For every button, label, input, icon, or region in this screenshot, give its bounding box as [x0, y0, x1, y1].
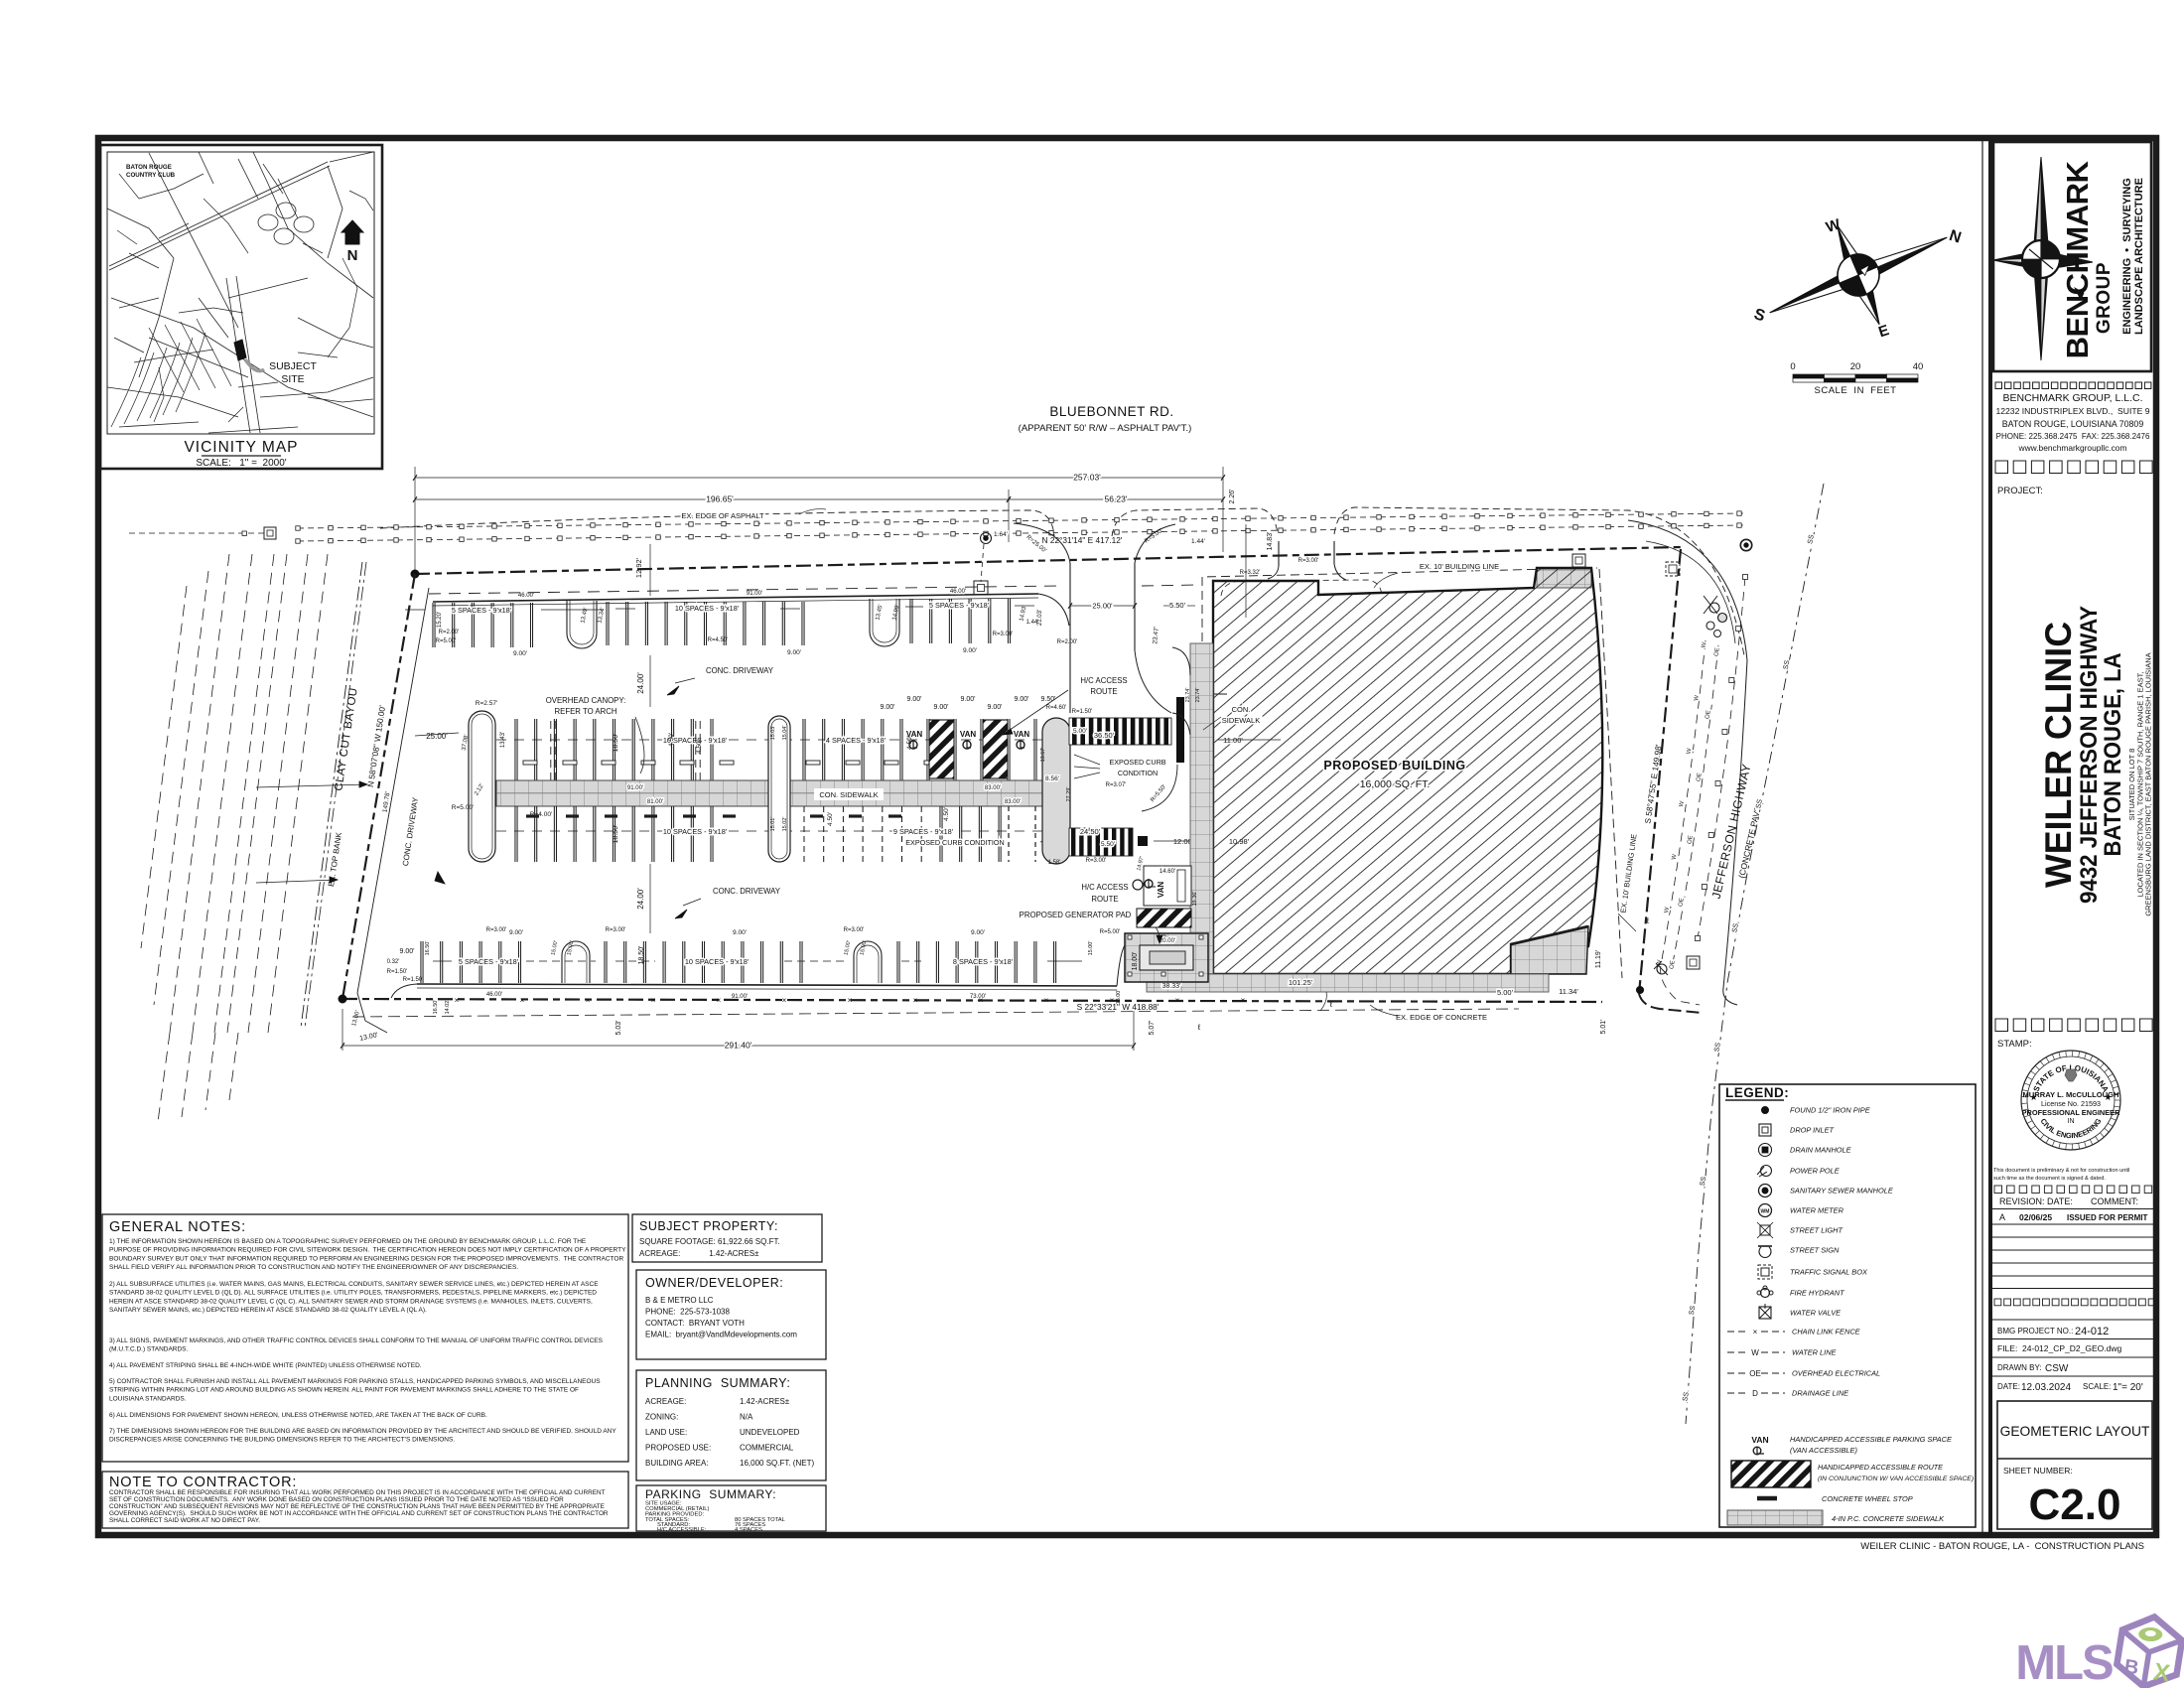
svg-text:R=5.00': R=5.00' [436, 638, 457, 644]
svg-text:25.00': 25.00' [426, 732, 448, 741]
svg-text:SANITARY SEWER MAINS, etc.) DE: SANITARY SEWER MAINS, etc.) DEPICTED HER… [109, 1307, 427, 1314]
svg-text:BUILDING AREA:: BUILDING AREA: [645, 1459, 709, 1468]
svg-text:14.02': 14.02' [445, 1000, 451, 1015]
svg-text:CONTRACTOR SHALL BE RESPONSIBL: CONTRACTOR SHALL BE RESPONSIBLE FOR INSU… [109, 1489, 606, 1496]
svg-text:WEILER CLINIC - BATON ROUGE, L: WEILER CLINIC - BATON ROUGE, LA - CONSTR… [1860, 1541, 2144, 1552]
svg-text:×: × [651, 996, 656, 1005]
svg-text:R=1.50': R=1.50' [403, 977, 424, 983]
svg-text:ENGINEERING • SURVEYING: ENGINEERING • SURVEYING [2121, 178, 2133, 335]
svg-text:License No. 21593: License No. 21593 [2041, 1099, 2101, 1108]
svg-text:VAN: VAN [960, 730, 977, 739]
svg-text:ℓ: ℓ [1329, 1000, 1333, 1009]
svg-text:STREET LIGHT: STREET LIGHT [1790, 1226, 1843, 1235]
svg-text:5) CONTRACTOR SHALL FURNISH AN: 5) CONTRACTOR SHALL FURNISH AND INSTALL … [109, 1378, 601, 1385]
svg-text:16,000 SQ.FT. (NET): 16,000 SQ.FT. (NET) [740, 1459, 814, 1468]
svg-text:5.01': 5.01' [1600, 1020, 1607, 1035]
svg-text:D: D [1752, 1389, 1758, 1398]
svg-text:9.00': 9.00' [1015, 696, 1029, 703]
svg-text:R=1.50': R=1.50' [1072, 709, 1093, 715]
svg-text:EX. 10' BUILDING LINE: EX. 10' BUILDING LINE [1420, 562, 1499, 571]
svg-text:4-IN P.C. CONCRETE SIDEWALK: 4-IN P.C. CONCRETE SIDEWALK [1832, 1514, 1945, 1523]
svg-text:SANITARY SEWER MANHOLE: SANITARY SEWER MANHOLE [1790, 1187, 1893, 1196]
svg-text:5 SPACES - 9'x18': 5 SPACES - 9'x18' [459, 957, 519, 966]
svg-text:18.50': 18.50' [613, 825, 619, 844]
svg-text:SCALE: 1" = 2000': SCALE: 1" = 2000' [196, 458, 286, 469]
svg-text:4.50': 4.50' [906, 736, 913, 750]
svg-text:HANDICAPPED ACCESSIBLE ROUTE: HANDICAPPED ACCESSIBLE ROUTE [1818, 1463, 1943, 1472]
svg-text:PROJECT:: PROJECT: [1997, 486, 2043, 496]
svg-text:46.00': 46.00' [486, 992, 502, 998]
svg-text:(M.U.T.C.D.) STANDARDS.: (M.U.T.C.D.) STANDARDS. [109, 1346, 189, 1353]
svg-text:15.04': 15.04' [782, 726, 788, 741]
svg-text:R=2.00': R=2.00' [1057, 639, 1078, 645]
svg-text:W: W [1751, 1348, 1759, 1357]
svg-text:such time as the document is s: such time as the document is signed & da… [1993, 1176, 2106, 1182]
svg-text:11.19': 11.19' [1595, 950, 1602, 968]
svg-text:24-012: 24-012 [2075, 1326, 2109, 1337]
svg-text:81.00': 81.00' [647, 799, 663, 805]
svg-text:5.50': 5.50' [1169, 601, 1186, 610]
svg-text:(IN CONJUNCTION W/ VAN ACCESSI: (IN CONJUNCTION W/ VAN ACCESSIBLE SPACE) [1818, 1476, 1974, 1482]
svg-text:4.50': 4.50' [696, 740, 703, 754]
svg-text:STANDARD 38-02 QUALITY LEVEL D: STANDARD 38-02 QUALITY LEVEL D (QL D). A… [109, 1290, 597, 1297]
svg-text:GOVERNING AGENCY(S). SHOULD S: GOVERNING AGENCY(S). SHOULD SUCH WORK BE… [109, 1510, 609, 1517]
svg-text:PHONE: 225-573-1038: PHONE: 225-573-1038 [645, 1308, 730, 1317]
svg-text:BATON ROUGE, LOUISIANA 70809: BATON ROUGE, LOUISIANA 70809 [2002, 419, 2144, 429]
svg-text:1.58': 1.58' [1048, 860, 1061, 866]
svg-text:REFER TO ARCH: REFER TO ARCH [555, 707, 617, 716]
svg-text:5.50': 5.50' [1101, 841, 1115, 848]
svg-text:7) THE DIMENSIONS SHOWN HEREON: 7) THE DIMENSIONS SHOWN HEREON FOR THE B… [109, 1428, 616, 1435]
svg-text:CONC. DRIVEWAY: CONC. DRIVEWAY [713, 887, 781, 896]
svg-text:EXPOSED CURB CONDITION: EXPOSED CURB CONDITION [905, 838, 1004, 847]
svg-text:36.50': 36.50' [1094, 731, 1115, 740]
svg-text:(APPARENT 50' R/W – ASPHALT PA: (APPARENT 50' R/W – ASPHALT PAV'T.) [1019, 423, 1192, 434]
svg-text:SHEET NUMBER:: SHEET NUMBER: [2003, 1466, 2073, 1476]
svg-text:19.36': 19.36' [1192, 892, 1198, 907]
svg-text:SHALL FIELD VERIFY ALL INFORMA: SHALL FIELD VERIFY ALL INFORMATION PRIOR… [109, 1264, 518, 1271]
svg-text:1"= 20': 1"= 20' [2113, 1382, 2143, 1393]
svg-text:PROFESSIONAL ENGINEER: PROFESSIONAL ENGINEER [2022, 1108, 2120, 1117]
svg-text:101.25': 101.25' [1289, 978, 1313, 987]
svg-text:56.23': 56.23' [1105, 494, 1128, 504]
svg-text:R=3.00': R=3.00' [1086, 858, 1107, 864]
svg-text:R=5.00': R=5.00' [452, 804, 474, 811]
svg-text:12232 INDUSTRIPLEX BLVD., SUI: 12232 INDUSTRIPLEX BLVD., SUITE 9 [1995, 406, 2149, 416]
svg-text:×: × [913, 996, 918, 1005]
svg-text:9.00': 9.00' [971, 929, 985, 936]
svg-text:VAN: VAN [1751, 1435, 1768, 1445]
svg-text:EX. EDGE OF CONCRETE: EX. EDGE OF CONCRETE [1396, 1013, 1487, 1022]
svg-text:CONC. DRIVEWAY: CONC. DRIVEWAY [706, 666, 774, 675]
svg-text:HANDICAPPED ACCESSIBLE PARKING: HANDICAPPED ACCESSIBLE PARKING SPACE [1790, 1435, 1952, 1444]
svg-text:FIRE HYDRANT: FIRE HYDRANT [1790, 1289, 1844, 1298]
svg-text:20: 20 [1850, 361, 1861, 372]
svg-text:DATE:: DATE: [1997, 1382, 2020, 1391]
svg-text:46.00': 46.00' [518, 593, 534, 599]
svg-text:PROPOSED BUILDING: PROPOSED BUILDING [1323, 759, 1465, 773]
svg-text:02/06/25: 02/06/25 [2019, 1212, 2052, 1222]
svg-text:4.50': 4.50' [827, 812, 834, 826]
svg-text:VICINITY MAP: VICINITY MAP [184, 439, 298, 456]
svg-text:CON. SIDEWALK: CON. SIDEWALK [819, 790, 878, 799]
svg-text:9 SPACES - 9'x18': 9 SPACES - 9'x18' [893, 827, 954, 836]
svg-text:1) THE INFORMATION SHOWN HEREO: 1) THE INFORMATION SHOWN HEREON IS BASED… [109, 1238, 587, 1245]
svg-text:SHALL CORRECT SAID WORK AT NO: SHALL CORRECT SAID WORK AT NO DIRECT PAY… [109, 1517, 260, 1524]
svg-text:12.92': 12.92' [634, 557, 643, 578]
svg-text:5.00': 5.00' [1073, 728, 1087, 735]
svg-text:9432 JEFFERSON HIGHWAY: 9432 JEFFERSON HIGHWAY [2076, 606, 2103, 904]
svg-text:11.00': 11.00' [1223, 736, 1243, 745]
svg-text:IN: IN [2068, 1118, 2075, 1125]
svg-text:38.33': 38.33' [1162, 983, 1181, 990]
svg-text:18.00': 18.00' [1132, 952, 1139, 971]
svg-text:DROP INLET: DROP INLET [1790, 1126, 1835, 1135]
svg-text:5 SPACES - 9'x18': 5 SPACES - 9'x18' [452, 606, 512, 615]
svg-text:196.65': 196.65' [706, 494, 734, 504]
svg-text:BOUNDARY SURVEY BUT ONLY THAT: BOUNDARY SURVEY BUT ONLY THAT INFORMATIO… [109, 1255, 623, 1262]
svg-text:B & E METRO LLC: B & E METRO LLC [645, 1296, 714, 1305]
svg-text:GENERAL NOTES:: GENERAL NOTES: [109, 1219, 246, 1235]
svg-text:ℓ: ℓ [1646, 916, 1650, 925]
svg-text:9.00': 9.00' [934, 704, 949, 711]
svg-text:15.02': 15.02' [782, 817, 788, 832]
svg-text:10 SPACES - 9'x18': 10 SPACES - 9'x18' [675, 604, 740, 613]
svg-text:R=2.00': R=2.00' [439, 630, 460, 635]
svg-text:DRAIN MANHOLE: DRAIN MANHOLE [1790, 1146, 1851, 1155]
svg-text:WATER METER: WATER METER [1790, 1206, 1844, 1215]
svg-text:291.40': 291.40' [725, 1041, 752, 1051]
svg-text:1.42-ACRES±: 1.42-ACRES± [740, 1397, 790, 1406]
svg-text:DISCREPANCIES ARISE CONCERNING: DISCREPANCIES ARISE CONCERNING THE BUILD… [109, 1437, 455, 1444]
svg-text:24.50': 24.50' [1080, 827, 1101, 836]
svg-text:11.34': 11.34' [1559, 987, 1578, 996]
svg-text:16,000 SQ. FT.: 16,000 SQ. FT. [1360, 778, 1431, 790]
svg-text:ℓ: ℓ [1197, 1023, 1201, 1032]
svg-text:COMMERCIAL: COMMERCIAL [740, 1444, 794, 1453]
svg-text:×: × [1175, 996, 1180, 1005]
svg-text:27.29': 27.29' [1066, 787, 1072, 802]
svg-text:C2.0: C2.0 [2029, 1480, 2121, 1529]
svg-text:EMAIL: bryant@VandMdevelopmen: EMAIL: bryant@VandMdevelopments.com [645, 1331, 797, 1339]
svg-text:NOTE TO CONTRACTOR:: NOTE TO CONTRACTOR: [109, 1475, 297, 1490]
svg-text:R=2.57': R=2.57' [476, 700, 497, 707]
svg-text:PLANNING SUMMARY:: PLANNING SUMMARY: [645, 1376, 790, 1390]
svg-text:×: × [586, 996, 591, 1005]
svg-text:H/C ACCESS: H/C ACCESS [1081, 883, 1128, 892]
svg-text:H/C ACCESS: H/C ACCESS [1080, 676, 1127, 685]
svg-text:4) ALL PAVEMENT STRIPING SHALL: 4) ALL PAVEMENT STRIPING SHALL BE 4-INCH… [109, 1362, 422, 1369]
svg-text:PARKING SUMMARY:: PARKING SUMMARY: [645, 1487, 776, 1501]
svg-text:OWNER/DEVELOPER:: OWNER/DEVELOPER: [645, 1276, 783, 1290]
svg-text:R=3.32': R=3.32' [1240, 570, 1261, 576]
svg-text:SIDEWALK: SIDEWALK [1222, 716, 1260, 725]
svg-text:5.07': 5.07' [1149, 1021, 1156, 1036]
svg-text:15.03': 15.03' [770, 726, 776, 741]
svg-text:2.26': 2.26' [1229, 490, 1236, 504]
svg-text:83.00': 83.00' [985, 785, 1001, 791]
svg-text:R=1.50': R=1.50' [387, 969, 408, 975]
svg-text:1.44': 1.44' [1026, 620, 1039, 626]
svg-text:91.00': 91.00' [627, 785, 643, 791]
svg-text:CONTACT: BRYANT VOTH: CONTACT: BRYANT VOTH [645, 1319, 745, 1328]
svg-text:HEREIN AT ASCE STANDARD 38-02: HEREIN AT ASCE STANDARD 38-02 QUALITY LE… [109, 1298, 593, 1305]
svg-text:CONSTRUCTION” AND SUBSEQUENT R: CONSTRUCTION” AND SUBSEQUENT REVISIONS M… [109, 1503, 605, 1510]
svg-text:R=3.00': R=3.00' [993, 632, 1014, 637]
svg-text:LEGEND:: LEGEND: [1725, 1085, 1789, 1100]
svg-text:8 SPACES - 9'x18': 8 SPACES - 9'x18' [953, 957, 1014, 966]
svg-text:13.57': 13.57' [1040, 748, 1046, 763]
svg-text:9.50': 9.50' [1041, 696, 1056, 703]
svg-text:MLS: MLS [2015, 1636, 2113, 1688]
svg-text:BMG PROJECT NO.:: BMG PROJECT NO.: [1997, 1327, 2073, 1336]
svg-text:×: × [520, 996, 525, 1005]
svg-text:9.00': 9.00' [513, 650, 527, 657]
svg-text:R=3.00': R=3.00' [844, 927, 865, 933]
svg-text:This document is preliminary &: This document is preliminary & not for c… [1993, 1168, 2129, 1174]
svg-text:WATER VALVE: WATER VALVE [1790, 1309, 1841, 1318]
svg-text:SITE: SITE [281, 373, 304, 385]
svg-text:23.74': 23.74' [1195, 688, 1201, 703]
svg-text:9.00': 9.00' [961, 696, 976, 703]
svg-text:ACREAGE:: ACREAGE: [645, 1397, 686, 1406]
svg-text:6) ALL DIMENSIONS FOR PAVEMENT: 6) ALL DIMENSIONS FOR PAVEMENT SHOWN HER… [109, 1412, 487, 1419]
svg-text:18.50': 18.50' [613, 734, 619, 753]
svg-text:COUNTRY CLUB: COUNTRY CLUB [126, 172, 176, 179]
svg-text:H/C ACCESSIBLE:: H/C ACCESSIBLE: [657, 1527, 707, 1533]
svg-text:9.00': 9.00' [881, 704, 895, 711]
svg-text:GROUP: GROUP [2094, 262, 2115, 334]
svg-text:WEILER CLINIC: WEILER CLINIC [2038, 622, 2079, 888]
svg-text:×: × [979, 996, 984, 1005]
svg-text:18.50': 18.50' [638, 946, 645, 965]
svg-text:×: × [717, 996, 722, 1005]
svg-text:OVERHEAD ELECTRICAL: OVERHEAD ELECTRICAL [1792, 1369, 1880, 1378]
svg-text:EX. EDGE OF ASPHALT: EX. EDGE OF ASPHALT [681, 511, 764, 520]
svg-text:ISSUED FOR PERMIT: ISSUED FOR PERMIT [2067, 1213, 2147, 1222]
svg-text:DRAINAGE LINE: DRAINAGE LINE [1792, 1389, 1848, 1398]
svg-text:VAN: VAN [1157, 882, 1165, 899]
svg-text:STAMP:: STAMP: [1997, 1039, 2032, 1050]
svg-text:BATON ROUGE, LA: BATON ROUGE, LA [2100, 653, 2126, 857]
svg-text:GREENSBURG LAND DISTRICT, EAST: GREENSBURG LAND DISTRICT, EAST BATON ROU… [2144, 652, 2153, 915]
svg-text:4 SPACES: 4 SPACES [735, 1527, 762, 1533]
svg-text:R=3.07': R=3.07' [1106, 782, 1127, 788]
svg-text:20.00': 20.00' [1160, 938, 1175, 944]
svg-text:EXPOSED CURB: EXPOSED CURB [1109, 758, 1165, 767]
svg-text:9.00': 9.00' [988, 704, 1003, 711]
svg-text:15.20': 15.20' [437, 612, 443, 628]
svg-text:POWER POLE: POWER POLE [1790, 1167, 1840, 1176]
svg-text:×: × [1753, 1328, 1758, 1336]
svg-text:10 SPACES - 9'x18': 10 SPACES - 9'x18' [663, 827, 728, 836]
svg-text:SCALE:: SCALE: [2083, 1382, 2111, 1391]
svg-text:UNDEVELOPED: UNDEVELOPED [740, 1428, 800, 1437]
svg-text:12.03.2024: 12.03.2024 [2021, 1382, 2071, 1393]
svg-text:N/A: N/A [740, 1413, 753, 1422]
svg-text:BENCHMARK GROUP, L.L.C.: BENCHMARK GROUP, L.L.C. [2002, 392, 2142, 404]
svg-text:9.00': 9.00' [963, 647, 977, 654]
svg-text:REVISION:: REVISION: [1999, 1196, 2045, 1206]
svg-text:STRIPING WITHIN PARKING LOT AN: STRIPING WITHIN PARKING LOT AND AROUND B… [109, 1387, 579, 1394]
svg-text:VAN: VAN [1014, 730, 1030, 739]
svg-text:16.50': 16.50' [433, 1000, 439, 1015]
svg-text:91.00': 91.00' [747, 591, 762, 597]
svg-text:3) ALL SIGNS, PAVEMENT MARKING: 3) ALL SIGNS, PAVEMENT MARKINGS, AND OTH… [109, 1337, 604, 1344]
svg-text:FILE: 24-012_CP_D2_GEO.dwg: FILE: 24-012_CP_D2_GEO.dwg [1997, 1343, 2121, 1353]
svg-text:OVERHEAD CANOPY:: OVERHEAD CANOPY: [546, 696, 626, 705]
svg-text:46.00': 46.00' [950, 589, 966, 595]
svg-text:R=4.50': R=4.50' [708, 637, 729, 643]
svg-text:SUBJECT: SUBJECT [269, 360, 317, 372]
svg-text:257.03': 257.03' [1073, 473, 1101, 483]
svg-text:STREET SIGN: STREET SIGN [1790, 1246, 1840, 1255]
svg-text:PROPOSED USE:: PROPOSED USE: [645, 1444, 711, 1453]
svg-text:13.43': 13.43' [500, 732, 506, 748]
svg-text:ROUTE: ROUTE [1091, 895, 1118, 904]
svg-text:10 SPACES - 9'x18': 10 SPACES - 9'x18' [685, 957, 750, 966]
svg-text:R=3.00': R=3.00' [606, 927, 626, 933]
svg-text:24.00': 24.00' [636, 672, 645, 694]
svg-text:GEOMETERIC LAYOUT: GEOMETERIC LAYOUT [2000, 1424, 2150, 1439]
svg-text:15.00': 15.00' [1088, 941, 1094, 956]
svg-text:25.00': 25.00' [1092, 602, 1113, 611]
svg-text:PROPOSED GENERATOR PAD: PROPOSED GENERATOR PAD [1020, 911, 1132, 919]
svg-text:9.00': 9.00' [400, 948, 415, 955]
svg-text:4.50': 4.50' [668, 733, 675, 747]
svg-text:R=4.60': R=4.60' [1046, 705, 1067, 711]
svg-text:2) ALL SUBSURFACE UTILITIES (i: 2) ALL SUBSURFACE UTILITIES (i.e. WATER … [109, 1281, 599, 1288]
svg-text:5 SPACES - 9'x18': 5 SPACES - 9'x18' [929, 601, 990, 610]
svg-text:9.00': 9.00' [907, 696, 922, 703]
svg-text:FOUND 1/2" IRON PIPE: FOUND 1/2" IRON PIPE [1790, 1106, 1870, 1115]
svg-text:www.benchmarkgroupllc.com: www.benchmarkgroupllc.com [2018, 443, 2127, 453]
svg-text:LAND USE:: LAND USE: [645, 1428, 687, 1437]
svg-text:9.00': 9.00' [509, 929, 523, 936]
svg-text:1.44': 1.44' [1191, 538, 1205, 545]
svg-text:WATER LINE: WATER LINE [1792, 1348, 1837, 1357]
svg-text:A: A [1999, 1212, 2005, 1222]
svg-text:16.50': 16.50' [425, 941, 431, 956]
svg-text:0.32': 0.32' [387, 959, 400, 965]
svg-text:13.00': 13.00' [1116, 990, 1122, 1005]
svg-text:×: × [1044, 996, 1049, 1005]
svg-text:×: × [848, 996, 853, 1005]
svg-text:R=3.00': R=3.00' [486, 927, 507, 933]
svg-text:SUBJECT PROPERTY:: SUBJECT PROPERTY: [639, 1219, 778, 1233]
svg-text:83.00': 83.00' [1005, 799, 1021, 805]
svg-text:5.00': 5.00' [1497, 988, 1514, 997]
svg-text:ROUTE: ROUTE [1090, 687, 1117, 696]
svg-text:SCALE IN FEET: SCALE IN FEET [1815, 385, 1897, 396]
svg-text:SQUARE FOOTAGE: 61,922.66 SQ.F: SQUARE FOOTAGE: 61,922.66 SQ.FT. [639, 1237, 780, 1246]
svg-text:ACREAGE: 1.42-ACRE: ACREAGE: 1.42-ACRES± [639, 1249, 759, 1258]
svg-text:0: 0 [1790, 361, 1795, 372]
svg-text:14.60': 14.60' [1160, 869, 1175, 875]
svg-text:R=3.00': R=3.00' [1298, 558, 1319, 564]
svg-text:TRAFFIC SIGNAL BOX: TRAFFIC SIGNAL BOX [1790, 1268, 1868, 1277]
svg-text:40: 40 [1913, 361, 1924, 372]
svg-text:9.00': 9.00' [733, 929, 747, 936]
svg-text:8.56': 8.56' [1045, 775, 1059, 782]
svg-text:PHONE: 225.368.2475 FAX: 225.: PHONE: 225.368.2475 FAX: 225.368.2476 [1996, 432, 2150, 441]
svg-text:OE: OE [1749, 1369, 1761, 1378]
svg-text:5.03': 5.03' [615, 1021, 622, 1036]
svg-text:14.83': 14.83' [1267, 532, 1274, 551]
svg-text:×: × [1241, 996, 1246, 1005]
svg-text:×: × [455, 996, 460, 1005]
svg-text:CONDITION: CONDITION [1118, 769, 1158, 777]
svg-text:BATON ROUGE: BATON ROUGE [126, 164, 172, 171]
svg-text:R=5.00': R=5.00' [1100, 929, 1121, 935]
svg-text:×: × [782, 996, 787, 1005]
svg-text:9.00': 9.00' [787, 649, 801, 656]
svg-text:PURPOSE OF PROVIDING INFORMATI: PURPOSE OF PROVIDING INFORMATION REQUIRE… [109, 1247, 626, 1254]
svg-text:4 SPACES - 9'x18': 4 SPACES - 9'x18' [826, 736, 887, 745]
svg-text:(VAN ACCESSIBLE): (VAN ACCESSIBLE) [1790, 1446, 1857, 1455]
svg-text:CHAIN LINK FENCE: CHAIN LINK FENCE [1792, 1328, 1860, 1336]
svg-text:MURRAY L. McCULLOUGH: MURRAY L. McCULLOUGH [2022, 1090, 2118, 1099]
svg-text:24.00': 24.00' [636, 888, 645, 910]
svg-text:DATE:: DATE: [2047, 1196, 2073, 1206]
svg-text:1.64': 1.64' [994, 531, 1008, 538]
svg-text:CONCRETE WHEEL STOP: CONCRETE WHEEL STOP [1822, 1494, 1913, 1503]
svg-text:BLUEBONNET RD.: BLUEBONNET RD. [1049, 404, 1173, 419]
svg-text:ZONING:: ZONING: [645, 1413, 678, 1422]
svg-text:15.01': 15.01' [770, 817, 776, 832]
svg-text:4.50': 4.50' [943, 807, 950, 821]
svg-text:N: N [347, 247, 358, 264]
svg-text:COMMENT:: COMMENT: [2091, 1196, 2138, 1206]
svg-text:CON.: CON. [1232, 705, 1251, 714]
svg-text:BENCHMARK: BENCHMARK [2060, 161, 2095, 359]
svg-text:LOUISIANA STANDARDS.: LOUISIANA STANDARDS. [109, 1395, 187, 1402]
svg-text:SET OF CONSTRUCTION DOCUMENTS.: SET OF CONSTRUCTION DOCUMENTS. ANY WORK … [109, 1496, 564, 1503]
svg-text:CSW: CSW [2045, 1363, 2069, 1374]
svg-text:WM: WM [1761, 1209, 1770, 1215]
svg-text:R=4.00': R=4.00' [530, 811, 552, 818]
svg-text:DRAWN BY:: DRAWN BY: [1997, 1363, 2042, 1372]
svg-text:LANDSCAPE ARCHITECTURE: LANDSCAPE ARCHITECTURE [2133, 178, 2145, 335]
